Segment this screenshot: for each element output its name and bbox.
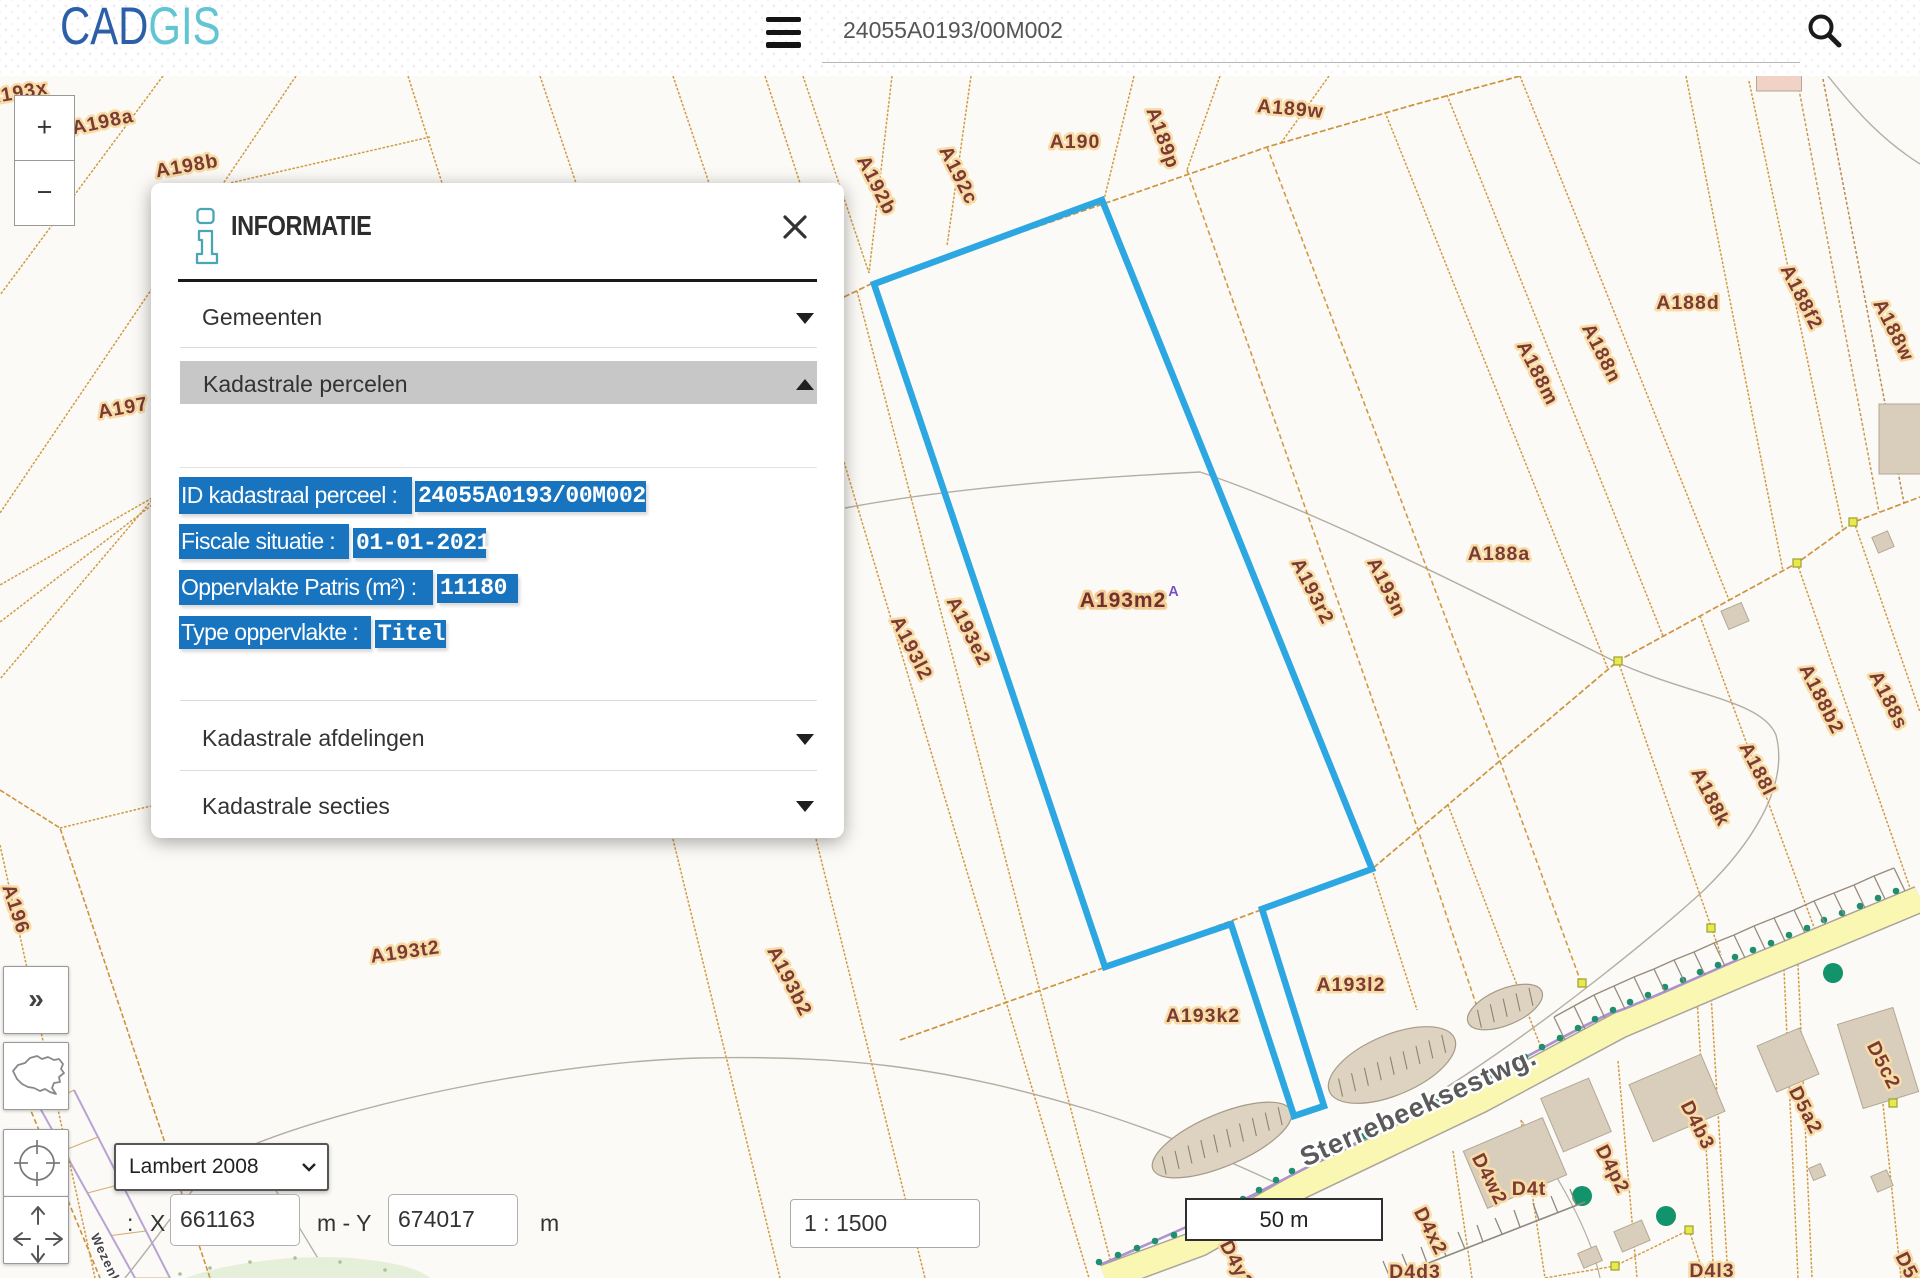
svg-text:A193k2: A193k2	[1166, 1005, 1240, 1027]
svg-text:A193l2: A193l2	[1317, 974, 1386, 996]
svg-text:A188d: A188d	[1656, 292, 1720, 314]
svg-text:A: A	[1168, 584, 1179, 600]
svg-text:D4l3: D4l3	[1689, 1260, 1734, 1278]
svg-text:D4t: D4t	[1512, 1178, 1546, 1200]
svg-text:A193m2: A193m2	[1080, 589, 1167, 612]
svg-text:A188a: A188a	[1468, 543, 1530, 565]
svg-text:D4d3: D4d3	[1389, 1261, 1441, 1278]
svg-text:A190: A190	[1050, 131, 1101, 153]
